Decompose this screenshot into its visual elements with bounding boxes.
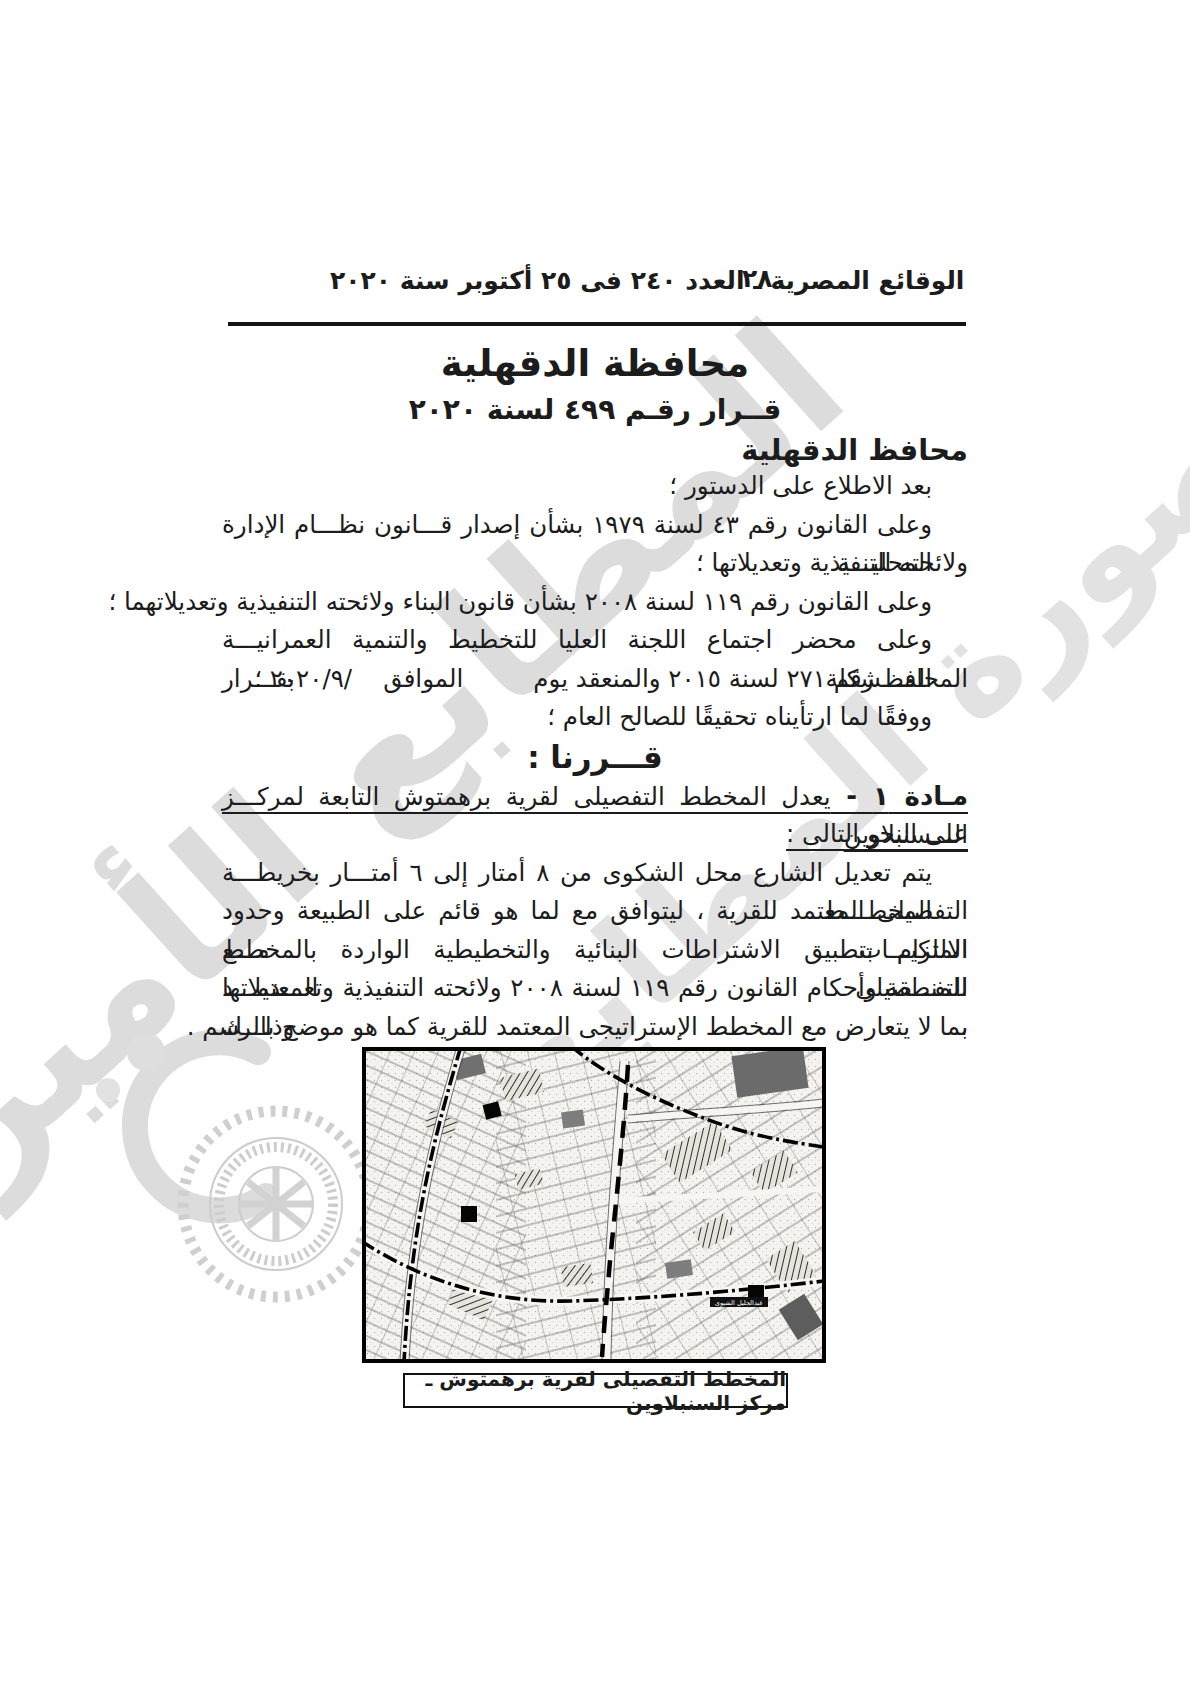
seal-stamp: [183, 1111, 369, 1297]
preamble-meeting-date-line: المحافظ رقم ٢٧١ لسنة ٢٠١٥ والمنعقد يوم ا…: [222, 660, 968, 699]
article-body-line: بما لا يتعارض مع المخطط الإستراتيجى المع…: [222, 1008, 968, 1047]
article-body-line: التفصيلى المعتمد للقرية ، ليتوافق مع لما…: [222, 892, 968, 931]
meeting-date-value: ٢٠٢٠/٩/: [270, 664, 352, 693]
article-1-label: مـادة ١ -: [831, 781, 968, 811]
village-map-figure: عبدالجليل الشيوى: [362, 1047, 826, 1363]
logo-swoosh: [135, 1042, 266, 1210]
map-caption-box: المخطط التفصيلى لقرية برهمتوش ـ مركز الس…: [403, 1373, 788, 1408]
preamble-line: وعلى القانون رقم ٤٣ لسنة ١٩٧٩ بشأن إصدار…: [222, 506, 968, 545]
decree-body: بعد الاطلاع على الدستور ؛ وعلى القانون ر…: [222, 467, 968, 1046]
issuer-heading: محافظ الدقهلية: [225, 433, 968, 467]
map-inline-label: عبدالجليل الشيوى: [710, 1297, 768, 1307]
governorate-title: محافظة الدقهلية: [225, 342, 965, 385]
gazette-issue-line: الوقائع المصرية ـ العدد ٢٤٠ فى ٢٥ أكتوبر…: [330, 266, 964, 295]
map-caption-text: المخطط التفصيلى لقرية برهمتوش ـ مركز الس…: [405, 1367, 786, 1415]
preamble-line: ووفقًا لما ارتأيناه تحقيقًا للصالح العام…: [222, 698, 968, 737]
article-body-line: يتم تعديل الشارع محل الشكوى من ٨ أمتار إ…: [222, 854, 968, 893]
logo-dot-small: [96, 1078, 120, 1102]
preamble-line: وعلى محضر اجتماع اللجنة العليا للتخطيط و…: [222, 621, 968, 660]
logo-dot-large: [127, 1033, 165, 1071]
preamble-line: بعد الاطلاع على الدستور ؛: [222, 467, 968, 506]
meeting-line-end: ؛: [254, 664, 270, 693]
article-body-line: الالتزام بتطبيق الاشتراطات البنائية والت…: [222, 931, 968, 970]
preamble-line: ولائحته التنفيذية وتعديلاتها ؛: [222, 544, 968, 583]
article-1-title-line: مـادة ١ - يعدل المخطط التفصيلى لقرية بره…: [222, 777, 968, 816]
header-rule: [228, 322, 966, 326]
decision-heading: قـــررنا :: [222, 737, 968, 777]
page-number: ٢٨: [742, 264, 773, 293]
article-1-title-line-2: على النحو التالى :: [222, 815, 968, 854]
article-1-title-text-2: على النحو التالى :: [786, 819, 968, 848]
gazette-page: المطابع الأميرية صورة المطابع الوقائع ال…: [0, 0, 1190, 1684]
article-body-line: للمنطقة وأحكام القانون رقم ١١٩ لسنة ٢٠٠٨…: [222, 969, 968, 1008]
svg-text:عبدالجليل الشيوى: عبدالجليل الشيوى: [715, 1299, 763, 1307]
decree-number-title: قــرار رقـم ٤٩٩ لسنة ٢٠٢٠: [225, 393, 965, 426]
preamble-line: وعلى القانون رقم ١١٩ لسنة ٢٠٠٨ بشأن قانو…: [222, 583, 968, 622]
meeting-line-text: المحافظ رقم ٢٧١ لسنة ٢٠١٥ والمنعقد يوم ا…: [352, 664, 968, 693]
village-map-image: عبدالجليل الشيوى: [366, 1051, 822, 1359]
